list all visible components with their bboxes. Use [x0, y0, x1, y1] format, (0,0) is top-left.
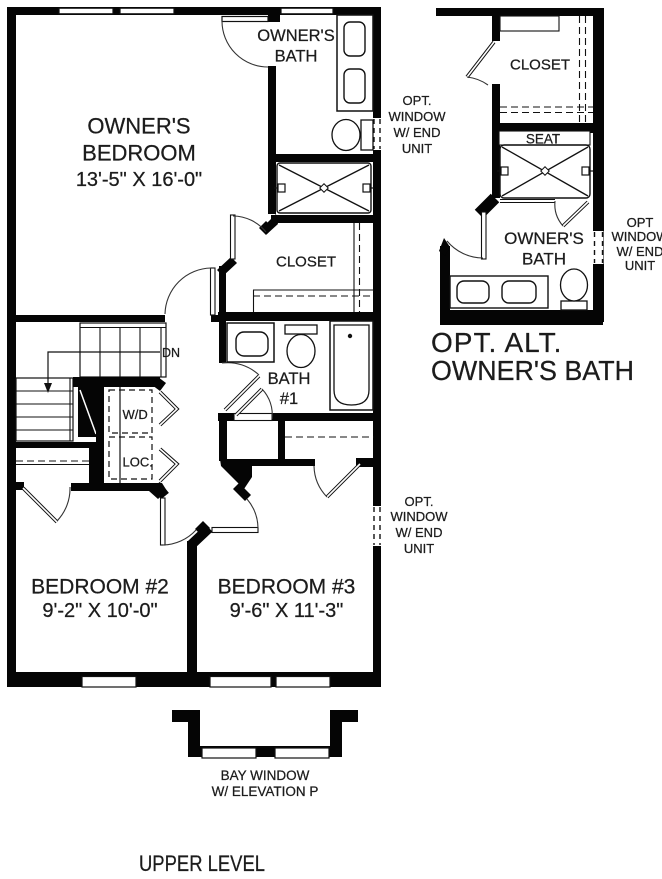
- svg-text:W/ END: W/ END: [617, 244, 662, 259]
- svg-text:OWNER'S: OWNER'S: [257, 27, 334, 45]
- svg-text:DN: DN: [162, 346, 180, 360]
- svg-text:CLOSET: CLOSET: [510, 57, 570, 74]
- svg-text:OPT. ALT.: OPT. ALT.: [431, 327, 562, 358]
- svg-text:9'-2" X 10'-0": 9'-2" X 10'-0": [42, 600, 157, 622]
- svg-text:OPT: OPT: [627, 215, 654, 230]
- svg-text:BEDROOM #3: BEDROOM #3: [218, 576, 356, 599]
- svg-text:BEDROOM #2: BEDROOM #2: [31, 576, 169, 599]
- svg-text:BATH: BATH: [268, 370, 311, 388]
- svg-text:UNIT: UNIT: [402, 141, 432, 156]
- svg-text:OWNER'S: OWNER'S: [504, 229, 584, 248]
- svg-text:WINDOW: WINDOW: [390, 509, 448, 524]
- svg-text:WINDOW: WINDOW: [611, 229, 662, 244]
- svg-text:9'-6" X 11'-3": 9'-6" X 11'-3": [230, 600, 344, 622]
- svg-text:OPT.: OPT.: [405, 494, 434, 509]
- svg-text:OPT.: OPT.: [403, 93, 432, 108]
- svg-text:SEAT: SEAT: [526, 132, 560, 147]
- svg-text:LOC.: LOC.: [123, 455, 153, 470]
- svg-text:CLOSET: CLOSET: [276, 254, 336, 271]
- svg-text:13'-5" X 16'-0": 13'-5" X 16'-0": [76, 169, 202, 191]
- svg-text:UPPER LEVEL: UPPER LEVEL: [139, 851, 265, 876]
- svg-text:OWNER'S: OWNER'S: [87, 114, 190, 139]
- svg-text:W/ END: W/ END: [394, 125, 441, 140]
- svg-text:WINDOW: WINDOW: [388, 109, 446, 124]
- svg-text:#1: #1: [280, 390, 298, 408]
- svg-text:BATH: BATH: [275, 48, 318, 66]
- svg-text:UNIT: UNIT: [404, 541, 434, 556]
- svg-text:W/ ELEVATION P: W/ ELEVATION P: [212, 784, 319, 799]
- svg-text:OWNER'S BATH: OWNER'S BATH: [431, 355, 634, 386]
- svg-text:BATH: BATH: [522, 250, 566, 269]
- svg-text:BEDROOM: BEDROOM: [82, 141, 196, 166]
- svg-text:BAY WINDOW: BAY WINDOW: [221, 768, 310, 783]
- svg-text:W/ END: W/ END: [396, 525, 443, 540]
- svg-text:W/D: W/D: [123, 407, 148, 422]
- svg-text:UNIT: UNIT: [625, 258, 655, 273]
